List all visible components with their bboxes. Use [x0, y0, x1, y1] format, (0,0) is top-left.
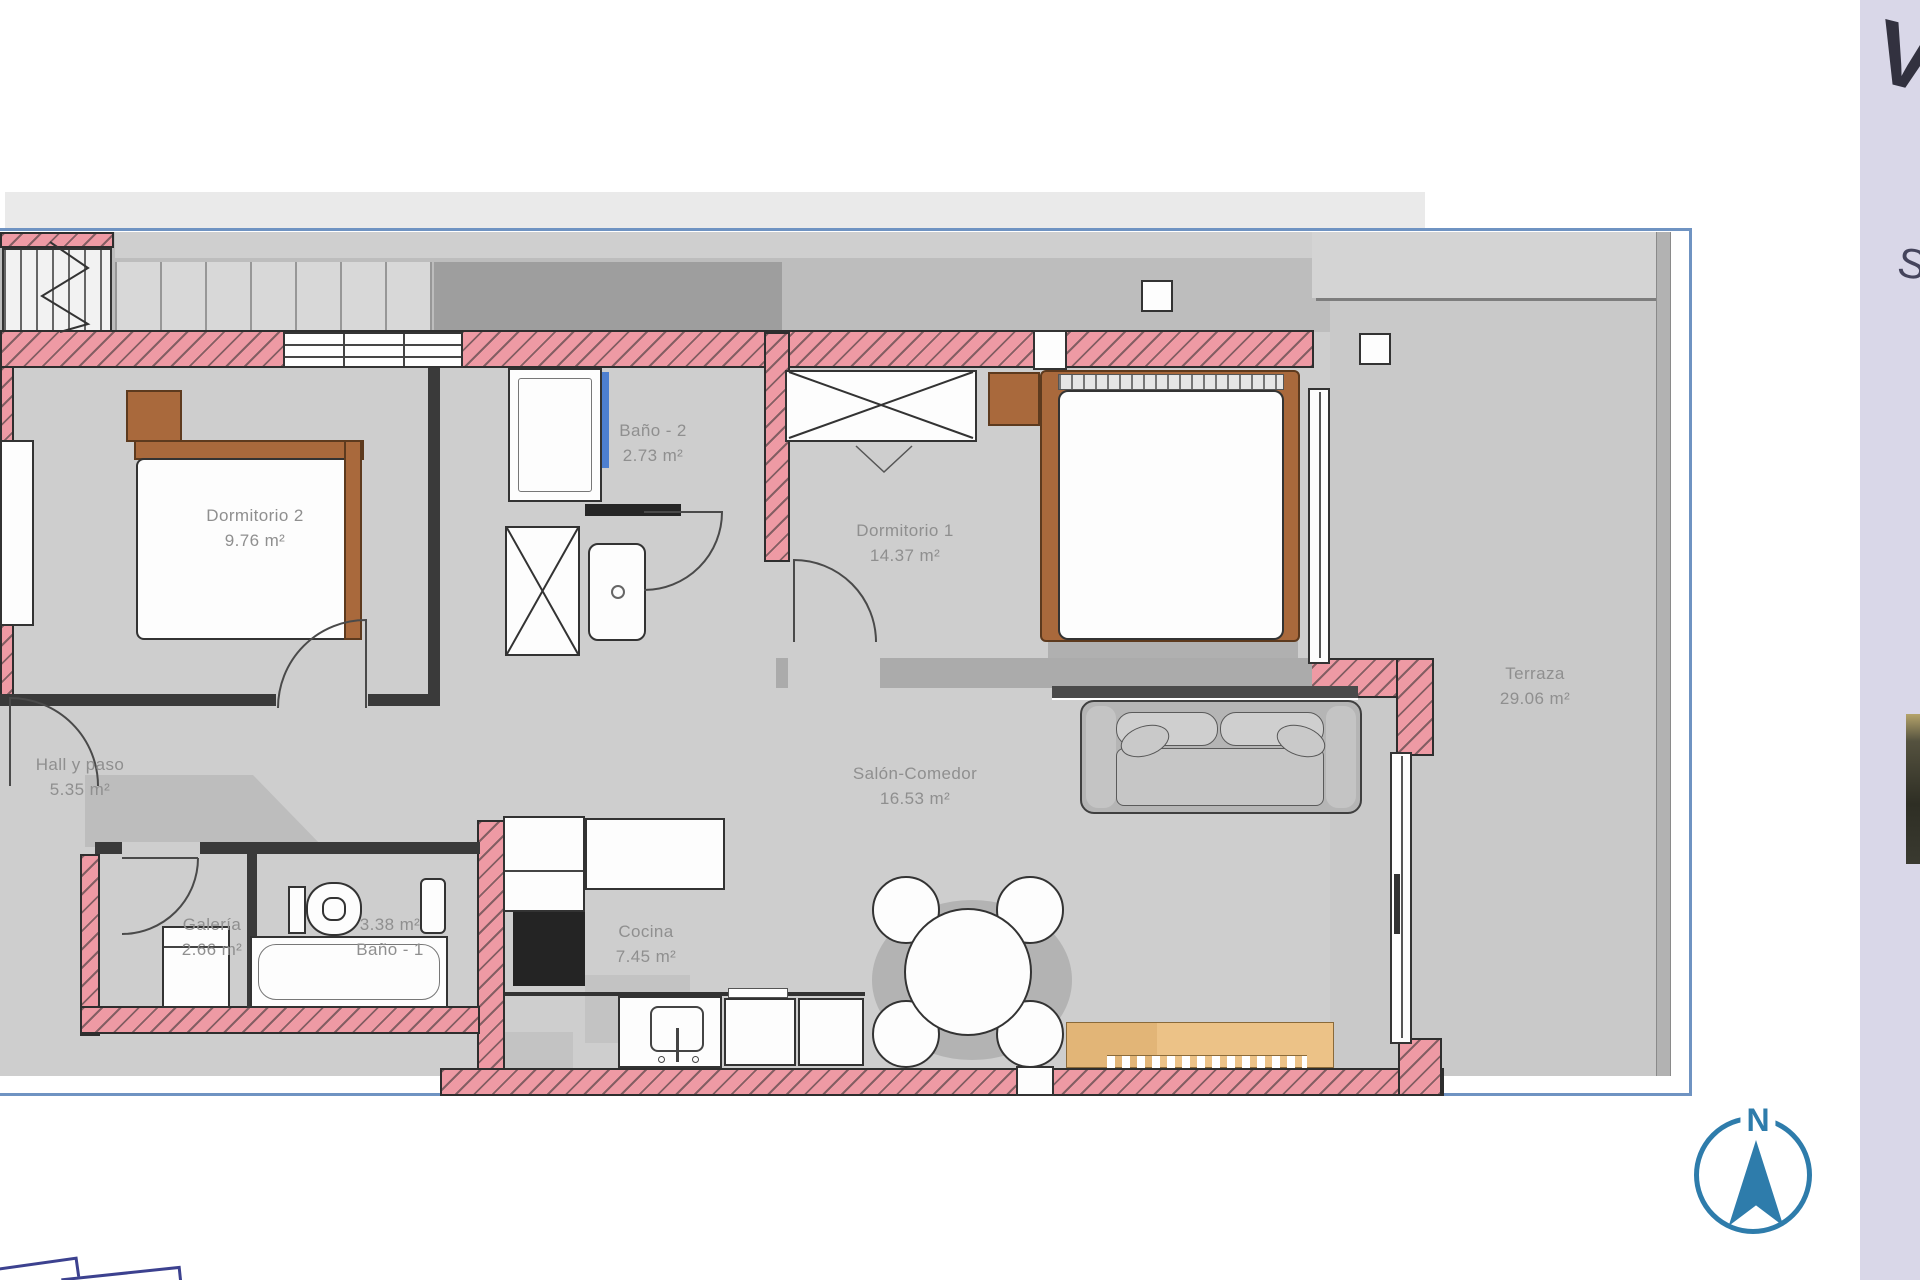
kitchen-tall-cabinet [503, 816, 585, 912]
sidebar-photo-thumbnail [1906, 714, 1920, 864]
sideboard-teeth [1107, 1055, 1307, 1068]
window-mullion-post [343, 334, 345, 366]
sofa [1080, 700, 1362, 814]
room-label-cocina: Cocina 7.45 m² [616, 919, 676, 969]
door-gap-galeria [122, 842, 200, 854]
sidebar-letter-mid: S [1894, 238, 1920, 290]
window-dorm1-terrace [1308, 388, 1330, 664]
partition-dorm2-right [428, 366, 440, 696]
bed-dorm1-headboard [1058, 374, 1284, 390]
kitchen-black-column [513, 910, 585, 986]
room-name: Terraza [1500, 661, 1570, 686]
shower-half-wall [585, 504, 681, 516]
bed-dorm2-rail-top [134, 440, 364, 460]
room-area: 2.66 m² [182, 937, 242, 962]
room-label-galeria: Galería 2.66 m² [182, 912, 242, 962]
sofa-armrest-right [1326, 706, 1356, 808]
window-mullion-line [285, 356, 461, 358]
nightstand-dorm1 [988, 372, 1040, 426]
wall-corner-bottom-right [1398, 1038, 1442, 1096]
window-top-small [1033, 330, 1067, 370]
window-top-left [283, 332, 463, 368]
pillar-top [1141, 280, 1173, 312]
pillar-terrace [1359, 333, 1391, 365]
floor-plan-page: Dormitorio 2 9.76 m² Baño - 2 2.73 m² Do… [0, 0, 1920, 1280]
door-track-mark [1394, 874, 1400, 934]
room-label-dormitorio-1: Dormitorio 1 14.37 m² [856, 518, 953, 568]
knob-dot [692, 1056, 699, 1063]
room-area: 2.73 m² [619, 443, 686, 468]
shower-bano2 [508, 368, 602, 502]
faucet-dot [611, 585, 625, 599]
sink-bano2 [588, 543, 646, 641]
knob-dot [658, 1056, 665, 1063]
wall-corner-vertical [1396, 658, 1434, 756]
right-sidebar: V S [1860, 0, 1920, 1280]
sink-bano1 [420, 878, 446, 934]
room-label-salon-comedor: Salón-Comedor 16.53 m² [853, 761, 977, 811]
kitchen-sink-unit [618, 996, 722, 1068]
room-area: 5.35 m² [36, 777, 125, 802]
nightstand-dorm2 [126, 390, 182, 442]
wall-bottom-left [80, 1006, 480, 1034]
kitchen-hob [728, 988, 788, 998]
terrace-top-light [1312, 232, 1658, 298]
room-area: 7.45 m² [616, 944, 676, 969]
wardrobe-dorm2 [0, 440, 34, 626]
window-mullion-post [403, 334, 405, 366]
sliding-door-terrace [1390, 752, 1412, 1044]
room-area: 14.37 m² [856, 543, 953, 568]
shower-tray-line [518, 378, 592, 492]
room-area: 29.06 m² [1500, 686, 1570, 711]
toilet-bowl-inner [322, 897, 346, 921]
toilet-tank [288, 886, 306, 934]
door-gap-bottom-wall [1016, 1066, 1054, 1096]
door-gap-dorm2 [276, 694, 368, 706]
bed-dorm1-mattress [1058, 390, 1284, 640]
sofa-armrest-left [1086, 706, 1116, 808]
wall-bano2-right [764, 332, 790, 562]
sidebar-letter-top: V [1864, 0, 1920, 114]
terrace-top-edge [1316, 298, 1658, 301]
room-name: Dormitorio 1 [856, 518, 953, 543]
kitchen-counter-top [585, 818, 725, 890]
room-label-dormitorio-2: Dormitorio 2 9.76 m² [206, 503, 303, 553]
roof-overhang-light [115, 232, 1330, 258]
room-name: Cocina [616, 919, 676, 944]
faucet-lever [676, 1028, 679, 1062]
terrace-right-wall [1656, 232, 1671, 1076]
closet-crossed [505, 526, 580, 656]
room-name: Baño - 2 [619, 418, 686, 443]
room-label-bano-1: 3.38 m² Baño - 1 [356, 912, 423, 962]
wall-top [0, 330, 1314, 368]
kitchen-appliance-2 [798, 998, 864, 1066]
dining-table [904, 908, 1032, 1036]
room-label-terraza: Terraza 29.06 m² [1500, 661, 1570, 711]
partition-hall-top [0, 694, 440, 706]
room-area: 9.76 m² [206, 528, 303, 553]
sofa-seat [1116, 748, 1324, 806]
stair-wall [0, 232, 114, 248]
top-gray-band [5, 192, 1425, 230]
bed-dorm2-rail-right [344, 440, 362, 640]
room-name: Hall y paso [36, 752, 125, 777]
corner-sketch [0, 1258, 200, 1280]
kitchen-appliance-1 [724, 998, 796, 1066]
staircase [2, 248, 112, 332]
wall-kitchen-left [477, 820, 505, 1076]
room-name: Salón-Comedor [853, 761, 977, 786]
wall-bottom-main [440, 1068, 1444, 1096]
window-mullion-line [285, 344, 461, 346]
room-label-hall: Hall y paso 5.35 m² [36, 752, 125, 802]
upper-window-band [115, 262, 432, 332]
door-gap-dorm1 [788, 658, 880, 688]
north-label: N [1740, 1102, 1775, 1139]
compass: N [1694, 1116, 1822, 1244]
room-name: Dormitorio 2 [206, 503, 303, 528]
sideboard [1066, 1022, 1334, 1068]
wardrobe-dorm1 [785, 370, 977, 442]
room-area: 3.38 m² [356, 912, 423, 937]
upper-dark-block [434, 262, 782, 332]
room-name: Galería [182, 912, 242, 937]
room-area: 16.53 m² [853, 786, 977, 811]
cabinet-divider [505, 870, 583, 872]
room-label-bano-2: Baño - 2 2.73 m² [619, 418, 686, 468]
toilet-bowl [306, 882, 362, 936]
room-name: Baño - 1 [356, 937, 423, 962]
shower-glass-panel [602, 372, 609, 468]
glass-line [1319, 392, 1321, 658]
glass-line [1401, 756, 1403, 1038]
tv-shelf-bar [1052, 686, 1358, 700]
